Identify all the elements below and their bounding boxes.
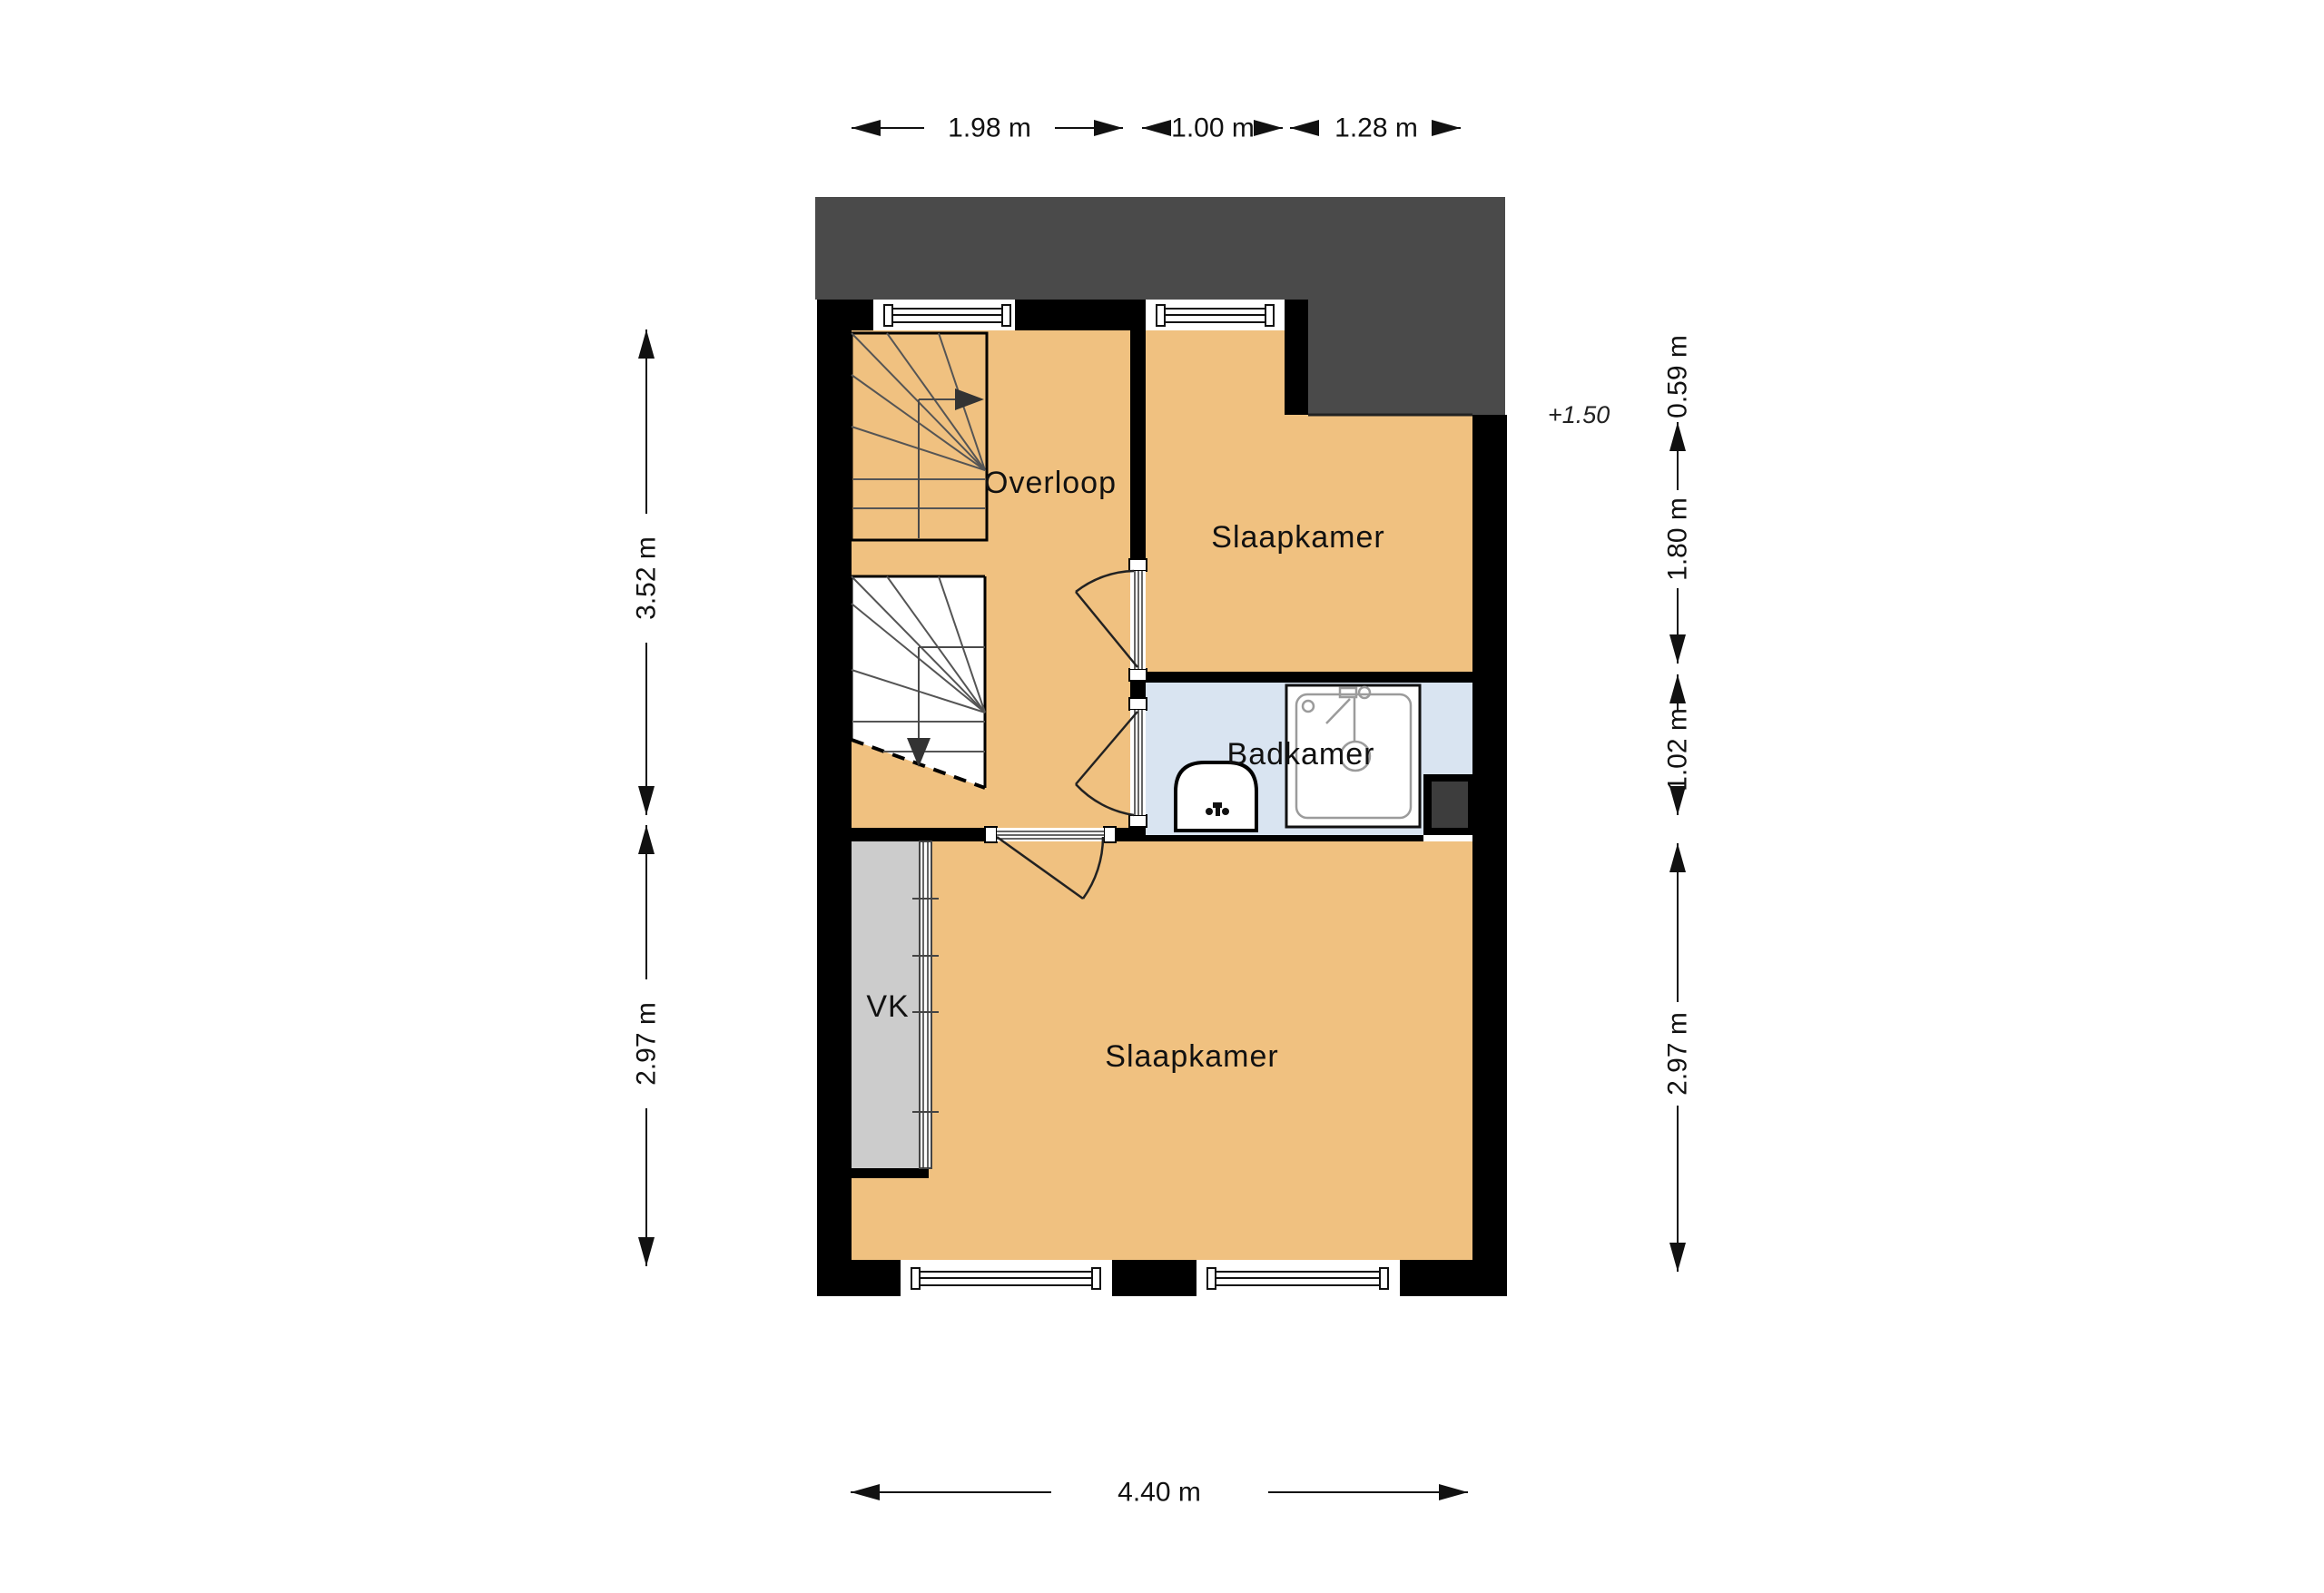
room-label-vk: VK: [866, 989, 909, 1024]
dim-label-right-2: 1.80 m: [1663, 497, 1693, 581]
arrow-right-icon: [1254, 120, 1283, 136]
wall-overloop-bottom-right: [1116, 828, 1146, 841]
dim-label-right-4: 2.97 m: [1663, 1012, 1693, 1096]
shaft-duct: [1432, 782, 1468, 828]
room-label-overloop: Overloop: [984, 466, 1117, 500]
dim-label-top-3: 1.28 m: [1334, 113, 1418, 143]
window-top-right: [1146, 300, 1285, 330]
dim-label-left-2: 2.97 m: [632, 1002, 662, 1086]
arrow-down-icon: [638, 1237, 655, 1266]
wall-badkamer-top: [1130, 672, 1472, 683]
wall-overloop-bedroom: [1130, 330, 1146, 559]
arrow-down-icon: [1669, 786, 1686, 815]
wall-badkamer-bottom: [1146, 835, 1423, 841]
arrow-down-icon: [1669, 634, 1686, 664]
wall-right: [1472, 415, 1507, 1296]
dim-label-top-2: 1.00 m: [1171, 113, 1255, 143]
sink: [1176, 762, 1256, 831]
window-top-left: [873, 300, 1015, 330]
wall-between-doors: [1130, 681, 1146, 698]
dimension-top: 1.98 m 1.00 m 1.28 m: [852, 113, 1461, 143]
arrow-down-icon: [638, 786, 655, 815]
dim-label-right-1: 0.59 m: [1663, 335, 1693, 418]
arrow-right-icon: [1432, 120, 1461, 136]
dim-label-top-1: 1.98 m: [948, 113, 1031, 143]
dim-label-right-3: 1.02 m: [1663, 708, 1693, 792]
floor-plan-page: Overloop Slaapkamer Badkamer Slaapkamer …: [0, 0, 2324, 1593]
room-label-slaapkamer-bottom: Slaapkamer: [1105, 1039, 1278, 1074]
dim-label-left-1: 3.52 m: [632, 536, 662, 620]
wall-bottom-seg2: [1112, 1260, 1196, 1296]
wall-top-seg2: [1015, 300, 1146, 330]
floor-plan-canvas: Overloop Slaapkamer Badkamer Slaapkamer …: [0, 0, 2324, 1593]
wall-vk-bottom: [852, 1168, 929, 1178]
dim-label-bottom-1: 4.40 m: [1118, 1478, 1201, 1508]
dimension-right: 0.59 m 1.80 m 1.02 m 2.97 m: [1663, 335, 1693, 1272]
window-bottom-left: [901, 1264, 1112, 1293]
dimension-bottom: 4.40 m: [851, 1478, 1468, 1508]
arrow-right-icon: [1094, 120, 1123, 136]
wall-bottom-seg1: [817, 1260, 901, 1296]
window-bottom-right: [1196, 1264, 1400, 1293]
wall-top-seg1: [817, 300, 873, 330]
wall-left: [817, 300, 852, 1296]
wall-bottom-seg3: [1400, 1260, 1507, 1296]
arrow-right-icon: [1439, 1484, 1468, 1500]
room-label-slaapkamer-top: Slaapkamer: [1211, 520, 1384, 555]
wall-overloop-bottom-left: [852, 828, 985, 841]
level-annotation: +1.50: [1548, 401, 1610, 428]
dimension-left: 3.52 m 2.97 m: [632, 329, 662, 1266]
arrow-down-icon: [1669, 1243, 1686, 1272]
wall-top-step: [1285, 300, 1308, 415]
room-label-badkamer: Badkamer: [1227, 737, 1375, 772]
